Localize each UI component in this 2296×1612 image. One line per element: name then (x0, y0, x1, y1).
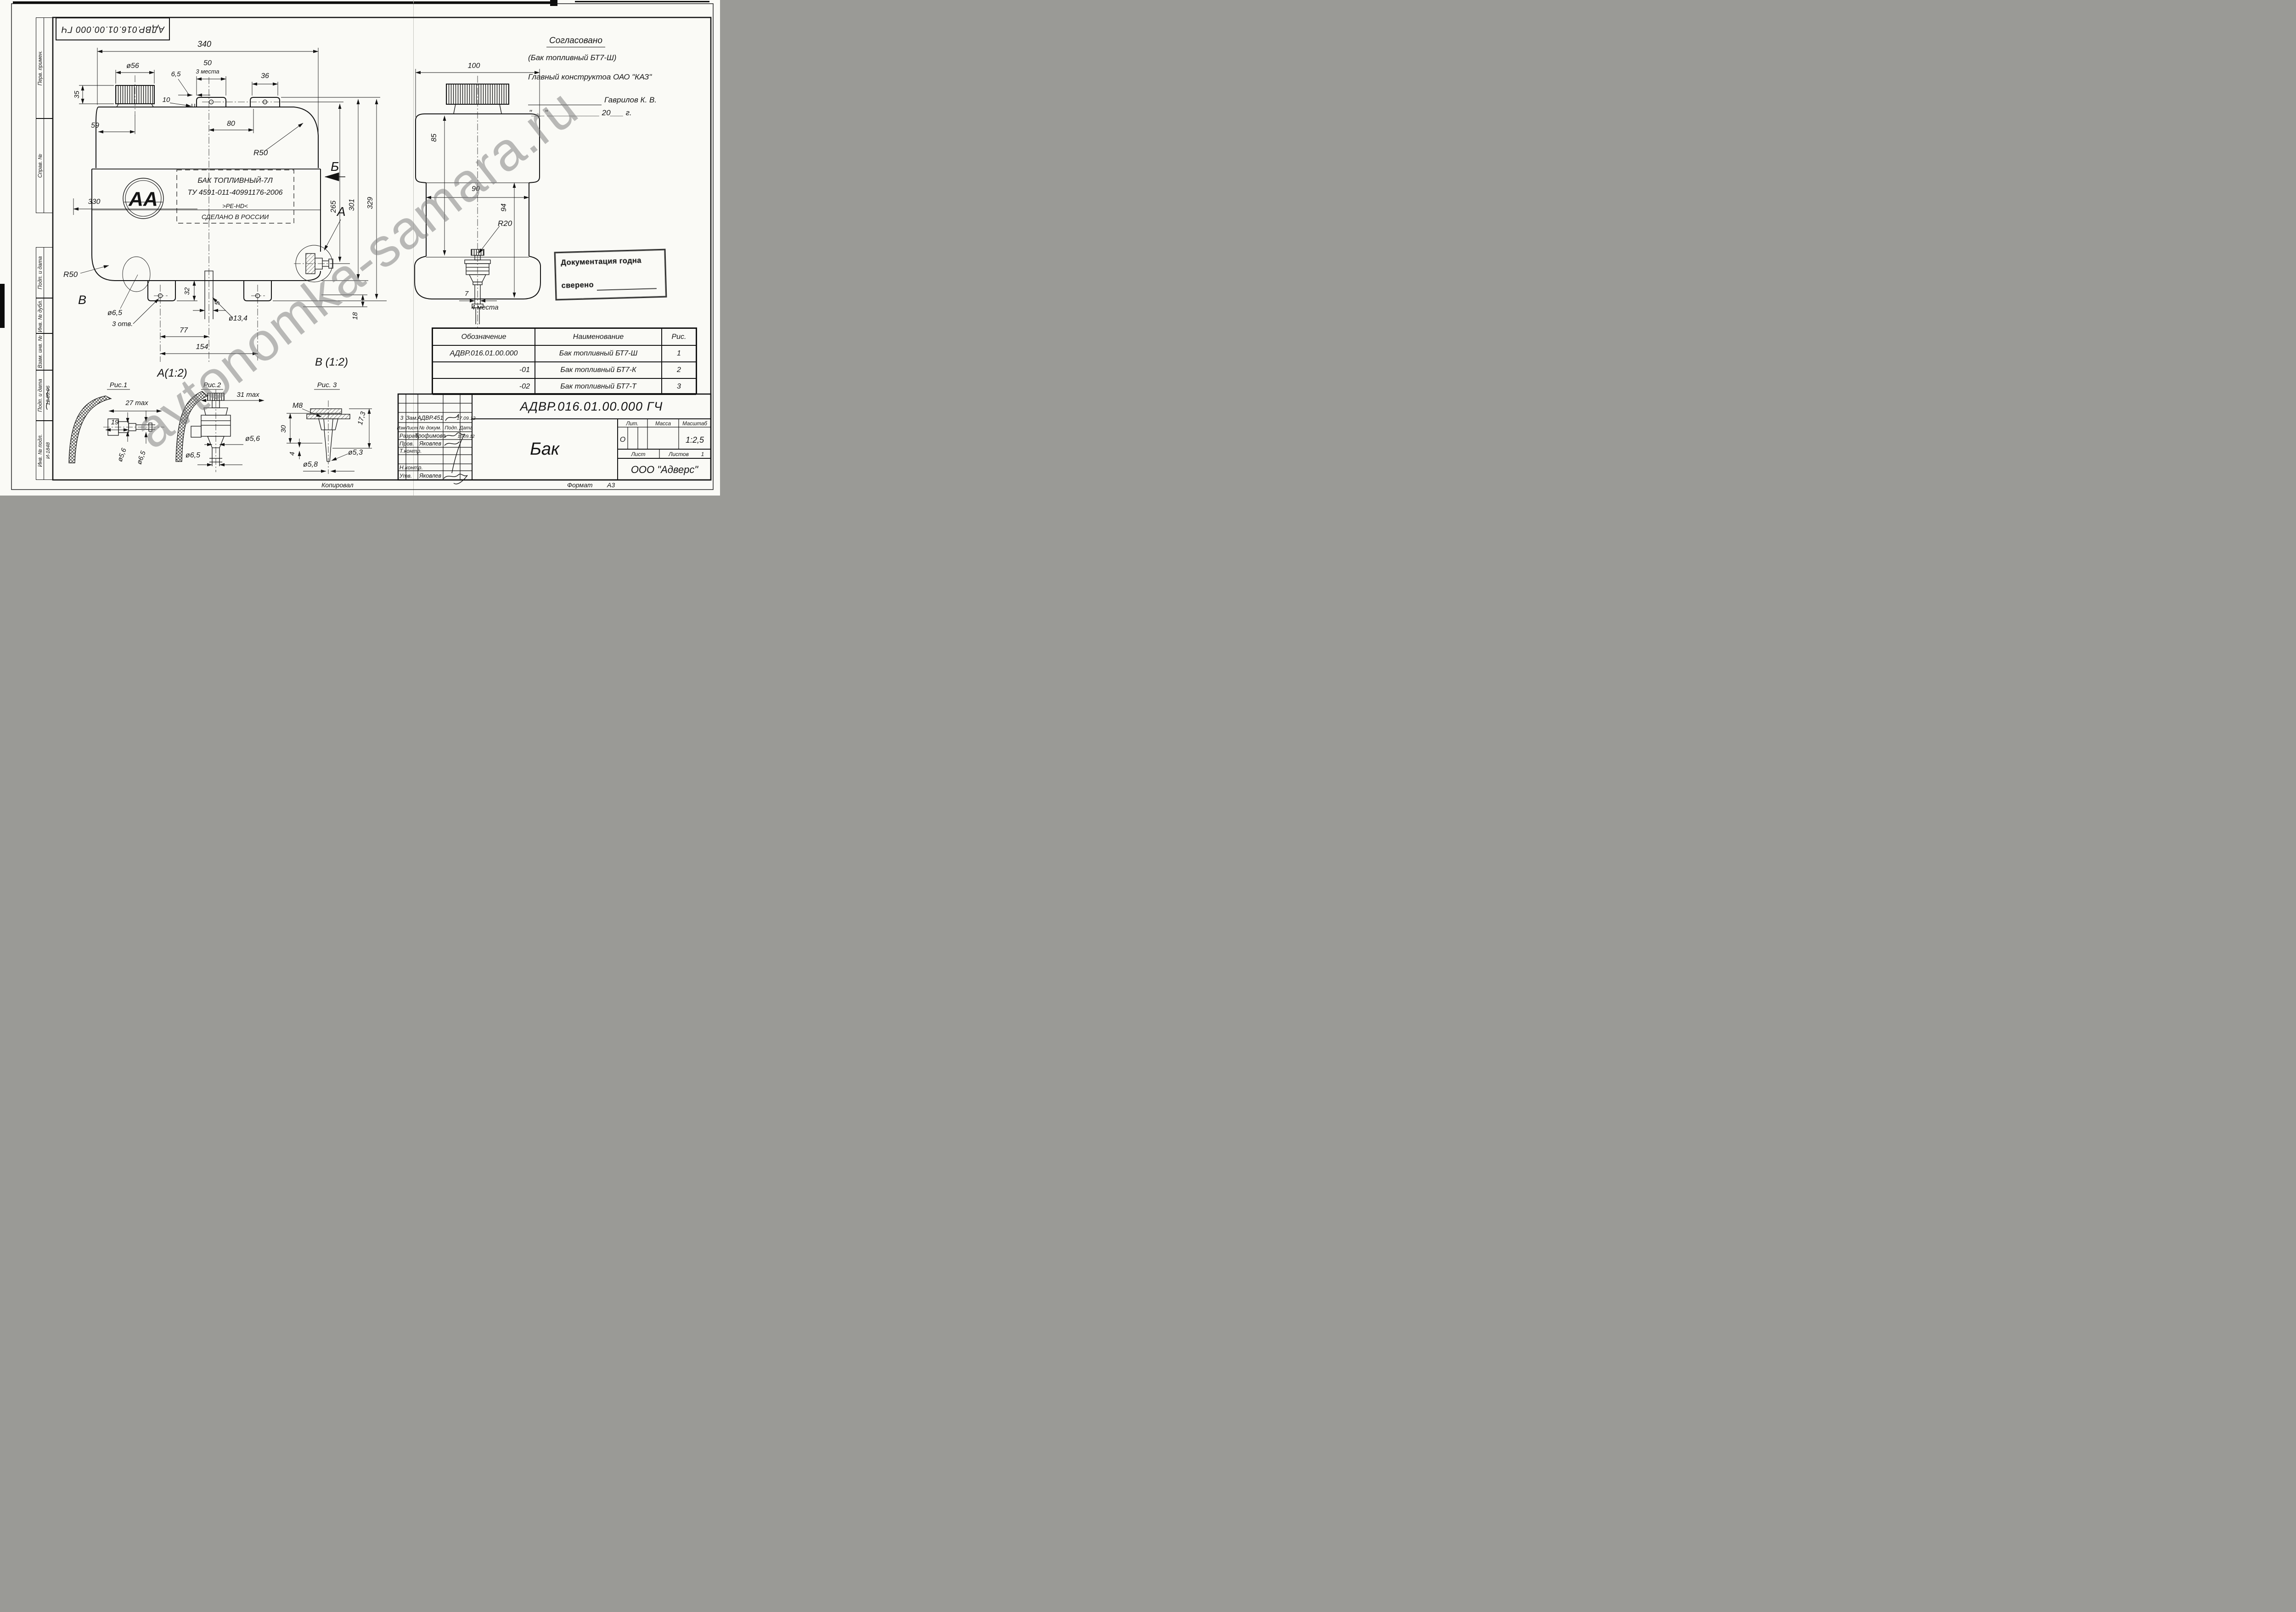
side-dim-85: 85 (430, 134, 438, 142)
fig3-dim-173: 17,3 (356, 411, 367, 426)
tb-masshtab-label: Масштаб (682, 421, 707, 427)
divider (44, 119, 44, 213)
dim-3-holes: 3 отв. (112, 320, 133, 328)
side-dim-4-places: 4 места (471, 304, 498, 311)
spec-cell-name: Бак топливный БТ7-К (535, 362, 662, 378)
logo-letters: АА (128, 188, 158, 210)
dim-10: 10 (163, 96, 170, 104)
tb-utv: Утв. (399, 473, 412, 479)
tb-prov-name: Яковлев (419, 440, 441, 447)
tb-scale-value: 1:2,5 (686, 435, 704, 445)
stamp-line2: сверено (561, 281, 594, 290)
dim-340: 340 (197, 39, 211, 49)
fig3-dim-30: 30 (280, 425, 287, 433)
spec-cell-code: -02 (433, 378, 535, 395)
section-v-label: В (78, 293, 86, 307)
dim-r50-top: R50 (253, 148, 268, 157)
divider (44, 248, 44, 298)
documentation-stamp: Документация годна сверено (554, 249, 667, 301)
margin-box-perv: Перв. примен. (36, 17, 53, 118)
side-dim-r20: R20 (498, 219, 512, 228)
tb-razrab-date: 10.09.12 (458, 434, 475, 439)
divider (44, 299, 44, 333)
dim-18: 18 (351, 312, 359, 320)
fig3-dim-53: ø5,3 (348, 449, 363, 457)
spec-table: Обозначение Наименование Рис. АДВР.016.0… (432, 327, 697, 394)
dim-77: 77 (180, 327, 188, 334)
approval-product: (Бак топливный БТ7-Ш) (528, 53, 616, 62)
tb-nkontr: Н.контр. (400, 464, 423, 471)
dim-5: 5 (214, 301, 221, 305)
fig1-dim-65: ø6,5 (135, 450, 147, 466)
fig1-dim-19: 19 (111, 418, 119, 426)
spec-cell-fig: 1 (662, 345, 696, 362)
margin-label-perv: Перв. примен. (38, 51, 43, 85)
margin-label-inv-dubl: Инв. № дубл. (38, 299, 43, 332)
tb-list-label: Лист (631, 451, 646, 457)
margin-box-podp2: Подп. и дата 12.09.06 (36, 370, 53, 421)
margin-box-inv-podl: Инв. № подл. И-1848 (36, 421, 53, 480)
tb-razrab-name: Трофимова (415, 433, 445, 439)
divider (44, 18, 44, 118)
footer-format-label: Формат (567, 481, 593, 489)
margin-label-vzam: Взам. инв. № (38, 335, 43, 368)
dim-65-top: 6,5 (171, 70, 181, 78)
spec-cell-name: Бак топливный БТ7-Т (535, 378, 662, 395)
tb-tkontr: Т.контр. (400, 448, 422, 454)
side-dim-94: 94 (500, 203, 508, 212)
footer-format-value: А3 (607, 481, 615, 489)
spec-header-fig: Рис. (662, 328, 696, 345)
tb-col-doc: № докум. (419, 425, 441, 431)
tb-rev-date: 17.09.12 (457, 416, 476, 421)
margin-box-sprav: Справ. № (36, 118, 53, 213)
divider (44, 334, 44, 370)
tb-lit-label: Лит. (626, 421, 639, 427)
tb-col-data: Дата (458, 425, 473, 431)
tb-col-list: Лист (405, 426, 418, 431)
fig3-dim-m8: M8 (293, 402, 303, 410)
fig2-dim-65: ø6,5 (186, 451, 200, 459)
tank-label-line1: БАК ТОПЛИВНЫЙ-7Л (197, 176, 272, 185)
fig1-label: Рис.1 (110, 381, 127, 389)
margin-handwritten-date: 12.09.06 (45, 386, 51, 406)
dim-50: 50 (203, 59, 212, 67)
corner-code-text: АДВР.016.01.00.000 ГЧ (61, 24, 164, 34)
dim-330: 330 (88, 198, 101, 206)
tb-part-name: Бак (530, 440, 560, 459)
dim-265: 265 (330, 201, 338, 214)
tb-col-podp: Подп. (445, 425, 458, 431)
fig1-dim-56: ø5,6 (116, 447, 128, 463)
margin-box-inv-dubl: Инв. № дубл. (36, 298, 53, 333)
dim-65-bottom: ø6,5 (107, 309, 122, 317)
fig3-dim-4: 4 (288, 452, 296, 456)
tb-massa-label: Масса (655, 421, 671, 427)
dim-301: 301 (348, 199, 356, 211)
fig2-dim-56: ø5,6 (245, 435, 260, 443)
spec-header-name: Наименование (535, 328, 662, 345)
fig3-dim-58: ø5,8 (303, 461, 318, 468)
margin-label-inv-podl: Инв. № подл. (38, 434, 43, 467)
dim-329: 329 (366, 197, 374, 209)
dim-56: ø56 (126, 62, 139, 70)
spec-cell-fig: 2 (662, 362, 696, 378)
tb-utv-name: Яковлев (419, 473, 441, 479)
tb-company: ООО "Адверс" (631, 464, 699, 475)
tb-designation: АДВР.016.01.00.000 ГЧ (519, 400, 663, 413)
approval-name: Гаврилов К. В. (604, 96, 657, 105)
tb-rev-num: 3 (400, 415, 404, 421)
tb-listov-value: 1 (701, 451, 704, 457)
spec-header-designation: Обозначение (433, 328, 535, 345)
view-a-label: А (336, 204, 346, 219)
tb-col-izm: Изм. (397, 426, 406, 431)
margin-box-podp1: Подп. и дата (36, 247, 53, 298)
tb-listov-label: Листов (668, 451, 689, 457)
tb-prov: Пров. (400, 440, 414, 447)
tank-label-line4: СДЕЛАНО В РОССИИ (202, 213, 269, 220)
dim-59: 59 (91, 122, 99, 130)
corner-code-box: АДВР.016.01.00.000 ГЧ (56, 17, 170, 40)
stamp-underline (597, 288, 657, 291)
dim-r50-bottom: R50 (63, 270, 78, 279)
tb-lit-value: О (620, 436, 625, 444)
stamp-line1: Документация годна (561, 256, 642, 267)
tank-label-line2: ТУ 4591-011-40991176-2006 (187, 189, 282, 197)
footer-copied: Копировал (321, 481, 354, 489)
divider (44, 371, 44, 420)
divider (44, 421, 44, 479)
spec-cell-fig: 3 (662, 378, 696, 395)
tb-rev-doc: АДВР.451 (417, 415, 443, 421)
dim-32: 32 (183, 287, 191, 295)
drawing-sheet: 340 ø56 50 3 места 36 6,5 10 80 R50 35 5… (0, 0, 720, 496)
approval-title: Согласовано (546, 36, 605, 47)
spec-cell-name: Бак топливный БТ7-Ш (535, 345, 662, 362)
margin-box-vzam: Взам. инв. № (36, 333, 53, 370)
side-dim-7: 7 (465, 290, 469, 298)
margin-label-sprav: Справ. № (38, 154, 43, 178)
fig3-label: Рис. 3 (317, 381, 337, 389)
margin-inventory-number: И-1848 (45, 442, 51, 458)
dim-50-places: 3 места (196, 68, 219, 75)
margin-label-podp1: Подп. и дата (38, 256, 43, 289)
spec-cell-code: -01 (433, 362, 535, 378)
dim-35: 35 (73, 90, 81, 98)
margin-label-podp2: Подп. и дата (38, 379, 43, 412)
detail-v-title: В (1:2) (315, 356, 348, 368)
spec-cell-code: АДВР.016.01.00.000 (433, 345, 535, 362)
side-dim-100: 100 (468, 62, 480, 70)
dim-80: 80 (227, 120, 235, 128)
tb-rev-kind: Зам. (406, 415, 418, 421)
dim-36: 36 (261, 72, 269, 80)
tank-label-line3: >PE-HD< (222, 203, 248, 209)
view-b-label: Б (331, 159, 339, 174)
